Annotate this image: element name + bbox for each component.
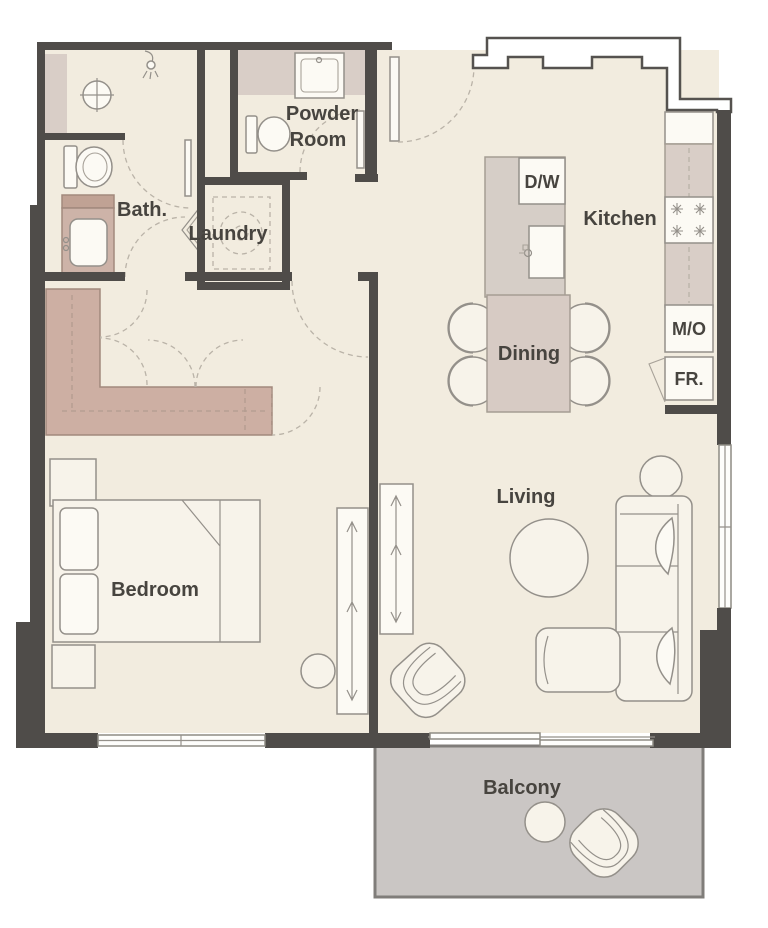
balcony-table bbox=[525, 802, 565, 842]
side-table bbox=[640, 456, 682, 498]
sliding-door-panel-bedroom bbox=[337, 508, 368, 714]
wall-right-above-window bbox=[717, 414, 731, 445]
wall-bedroom-top-mid bbox=[185, 272, 292, 281]
window-right bbox=[719, 445, 731, 608]
powder-sink bbox=[295, 53, 344, 98]
kitchen-label: Kitchen bbox=[583, 208, 656, 230]
wall-laundry-bottom bbox=[197, 282, 290, 290]
wall-shower-divider bbox=[45, 133, 125, 140]
wall-bottom-mid bbox=[265, 733, 378, 748]
bath-sink bbox=[70, 219, 107, 266]
bedroom-label: Bedroom bbox=[111, 579, 199, 601]
wall-powder-left bbox=[230, 42, 238, 180]
wall-bottom-living-left bbox=[375, 733, 430, 748]
fridge-label: FR. bbox=[675, 369, 704, 389]
powder-room-label-line2: Room bbox=[290, 129, 347, 151]
balcony-sliding-door bbox=[428, 733, 655, 746]
bed bbox=[53, 500, 260, 642]
dishwasher-label: D/W bbox=[525, 172, 560, 192]
counter-top-section bbox=[665, 112, 713, 144]
wall-right-upper bbox=[717, 110, 731, 414]
cooktop bbox=[665, 197, 713, 243]
nightstand bbox=[50, 459, 96, 506]
wall-right-pier bbox=[700, 630, 731, 748]
sofa-chaise bbox=[536, 628, 620, 692]
pillow bbox=[60, 508, 98, 570]
coffee-table bbox=[510, 519, 588, 597]
wall-bottom-left bbox=[16, 733, 98, 748]
wall-powder-right bbox=[365, 42, 377, 182]
sofa-body bbox=[616, 496, 692, 701]
wall-left-mid bbox=[30, 205, 45, 622]
wall-bottom-right bbox=[650, 733, 731, 748]
balcony-area bbox=[375, 746, 703, 897]
nightstand bbox=[52, 645, 95, 688]
bath-vanity bbox=[62, 195, 114, 279]
shower-tile-strip bbox=[45, 54, 67, 133]
wall-left-pier bbox=[16, 622, 45, 748]
wall-top bbox=[37, 42, 392, 50]
powder-toilet bbox=[246, 116, 290, 153]
entry-door-leaf bbox=[390, 57, 399, 141]
floor-plan: Bath. Laundry Powder Room Kitchen Dining… bbox=[0, 0, 768, 928]
balcony-label: Balcony bbox=[483, 777, 562, 799]
bath-toilet bbox=[64, 146, 112, 188]
sliding-glass-panel bbox=[430, 733, 540, 739]
sliding-glass-panel bbox=[540, 740, 653, 746]
wall-bath-right bbox=[197, 42, 205, 290]
powder-room-label-line1: Powder bbox=[286, 103, 358, 125]
wall-bedroom-top-left bbox=[37, 272, 125, 281]
laundry-label: Laundry bbox=[189, 223, 269, 245]
microwave-label: M/O bbox=[672, 319, 706, 339]
wall-bedroom-living bbox=[369, 281, 378, 733]
sliding-door-panel-living bbox=[380, 484, 413, 634]
floor-plan-canvas: Bath. Laundry Powder Room Kitchen Dining… bbox=[0, 0, 768, 928]
wall-laundry-top bbox=[197, 177, 290, 185]
living-label: Living bbox=[497, 486, 556, 508]
dining-label: Dining bbox=[498, 343, 560, 365]
bedroom-stool bbox=[301, 654, 335, 688]
wall-bedroom-top-cap bbox=[358, 272, 378, 281]
window-bedroom bbox=[98, 735, 265, 746]
wall-left-upper bbox=[37, 42, 45, 212]
wall-laundry-left-upper bbox=[197, 177, 205, 203]
pillow bbox=[60, 574, 98, 634]
bath-label: Bath. bbox=[117, 199, 167, 221]
wall-below-fridge bbox=[665, 405, 731, 414]
shower-glass-panel bbox=[185, 140, 191, 196]
